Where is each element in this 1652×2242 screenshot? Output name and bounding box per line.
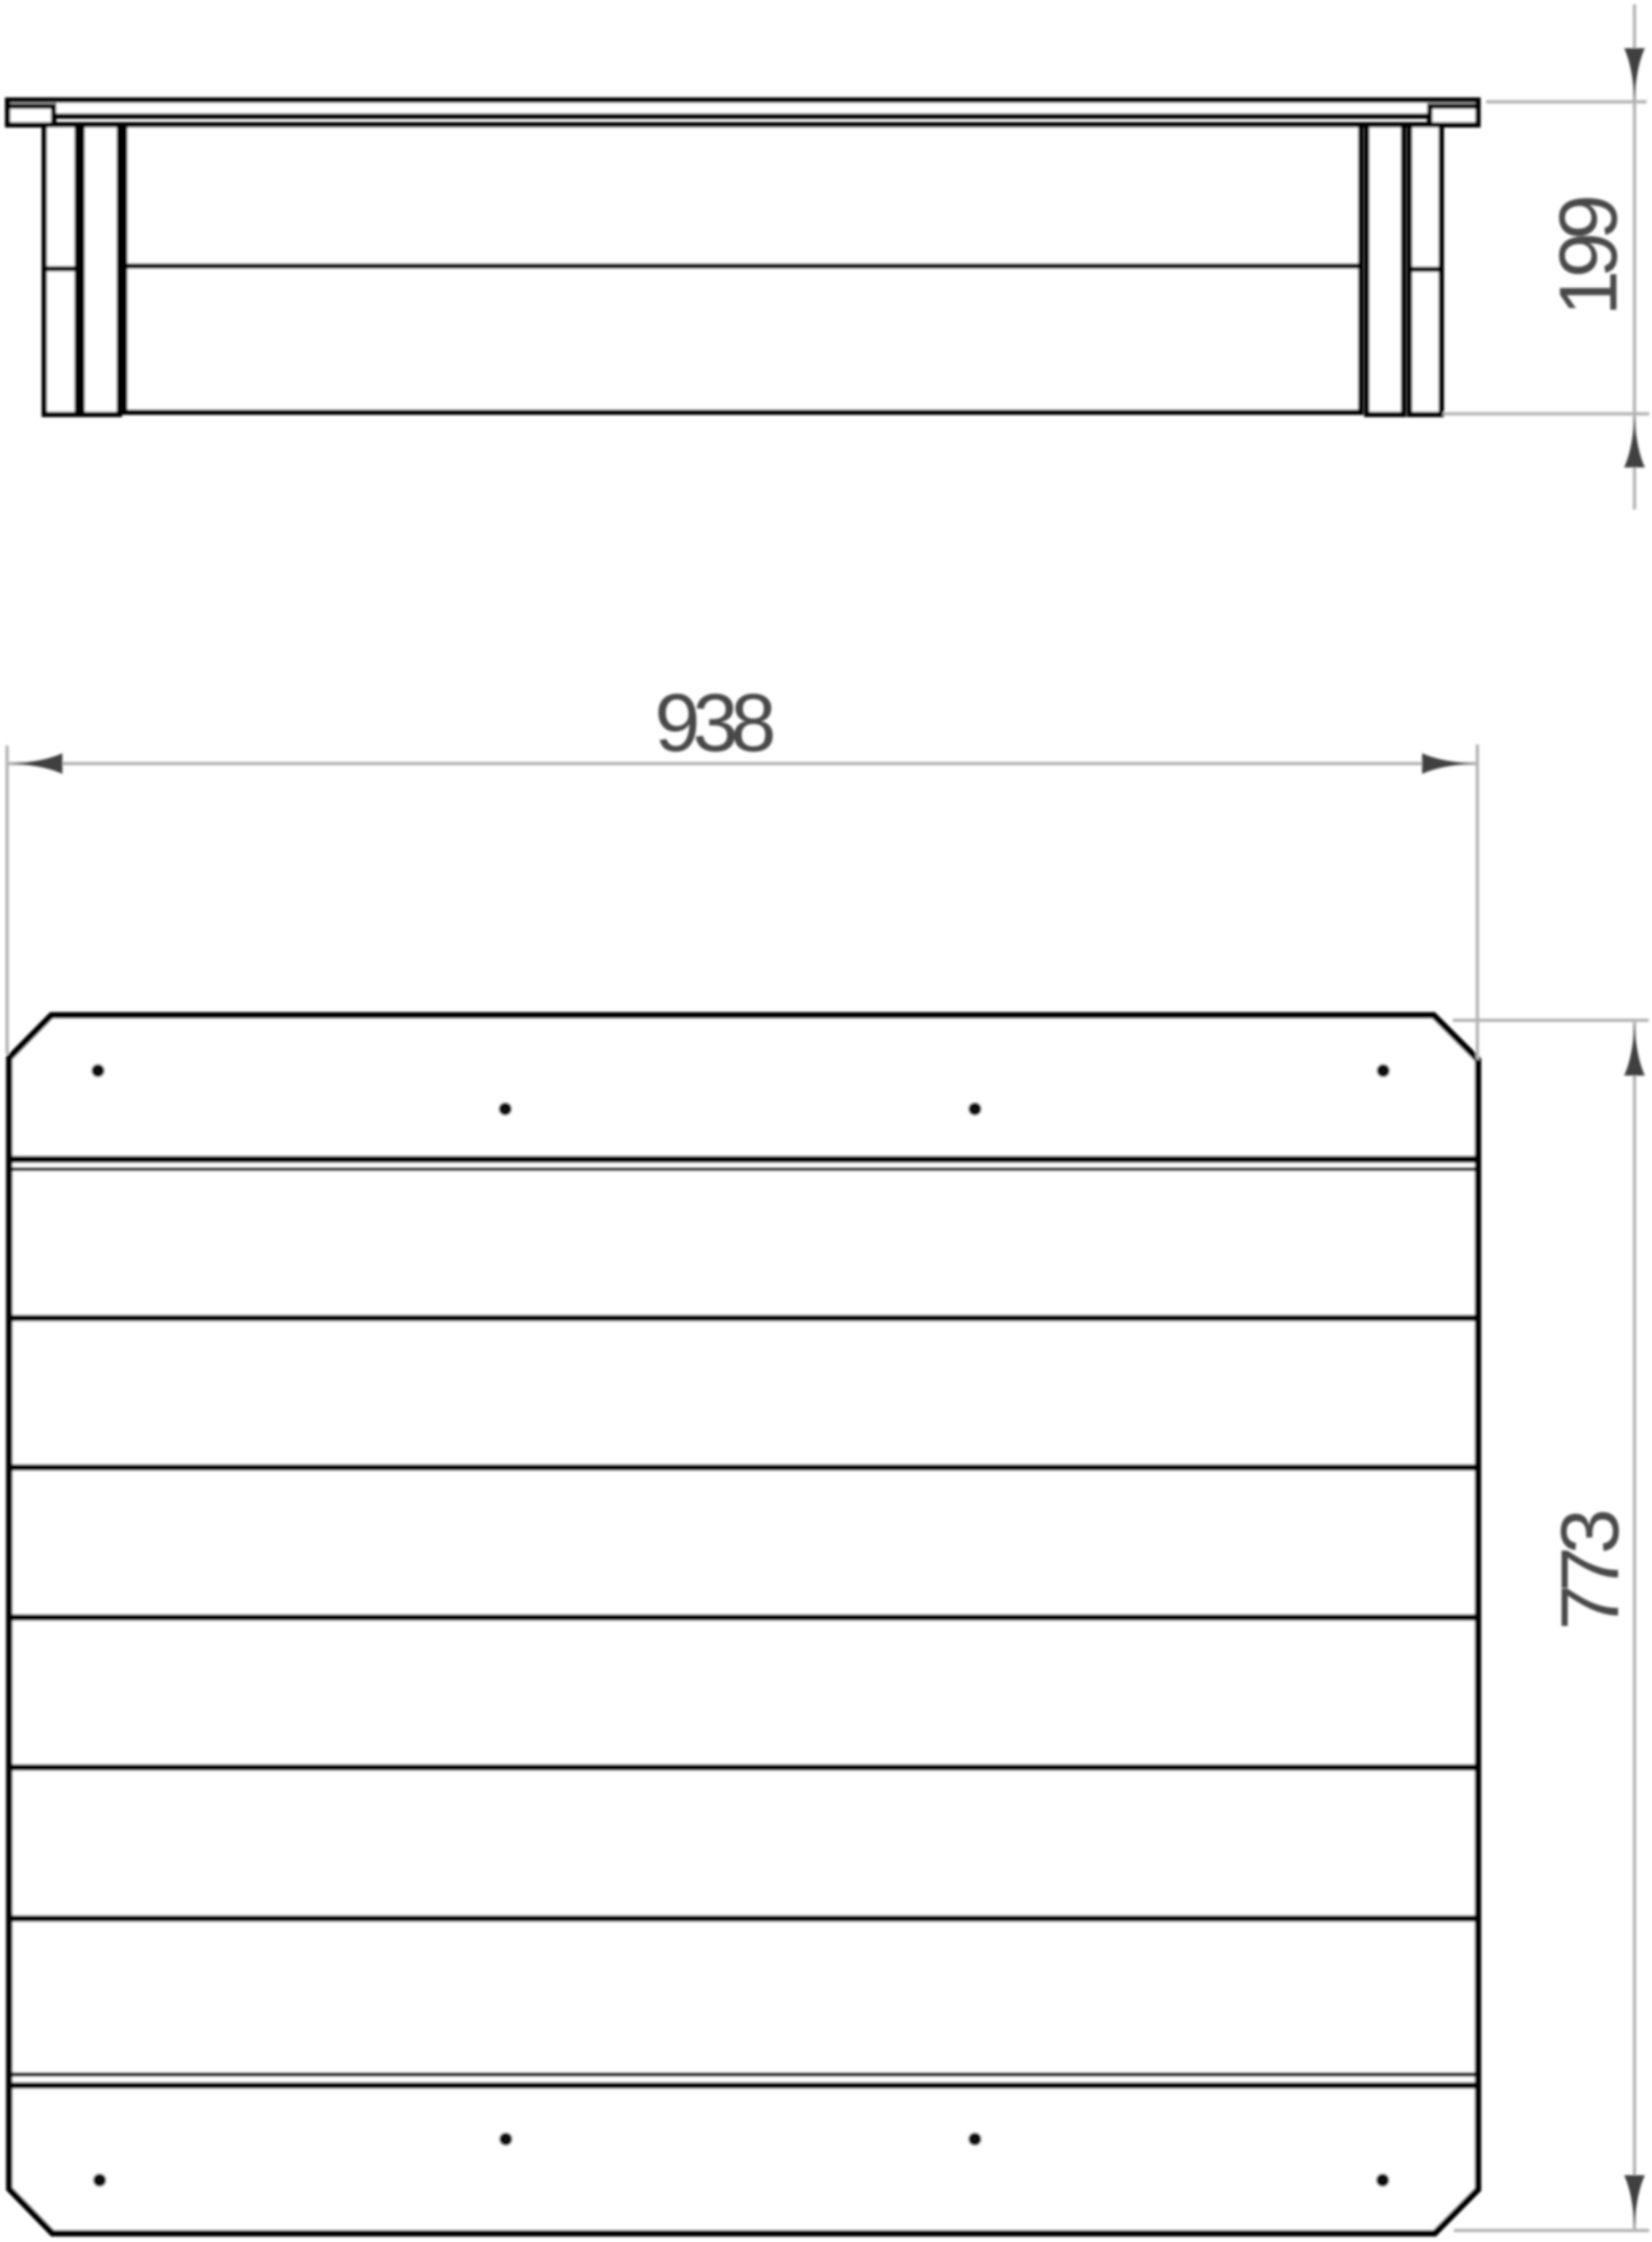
svg-text:773: 773 xyxy=(1544,1512,1636,1630)
svg-text:938: 938 xyxy=(655,677,773,768)
svg-text:199: 199 xyxy=(1542,198,1634,316)
